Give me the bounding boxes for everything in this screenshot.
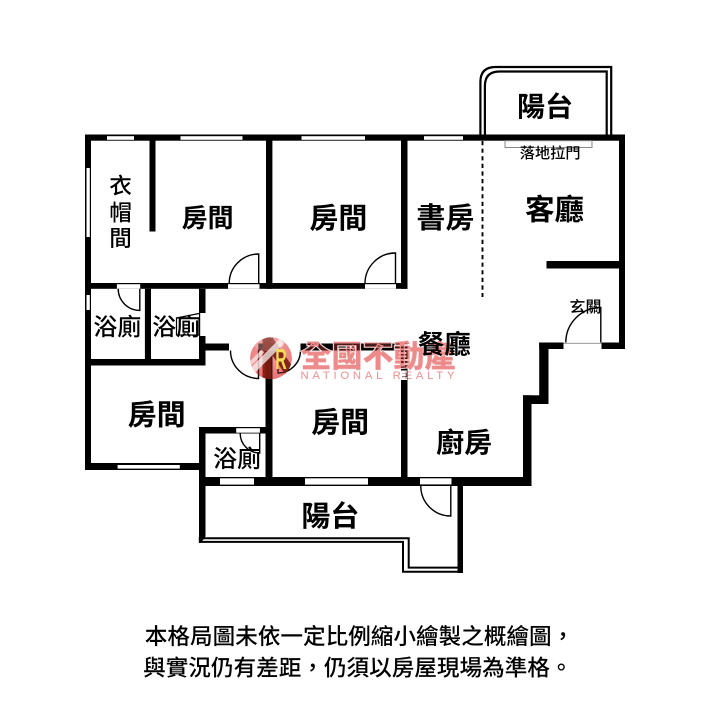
svg-text:R: R xyxy=(275,343,287,375)
svg-text:NATIONAL REALTY: NATIONAL REALTY xyxy=(301,370,459,382)
